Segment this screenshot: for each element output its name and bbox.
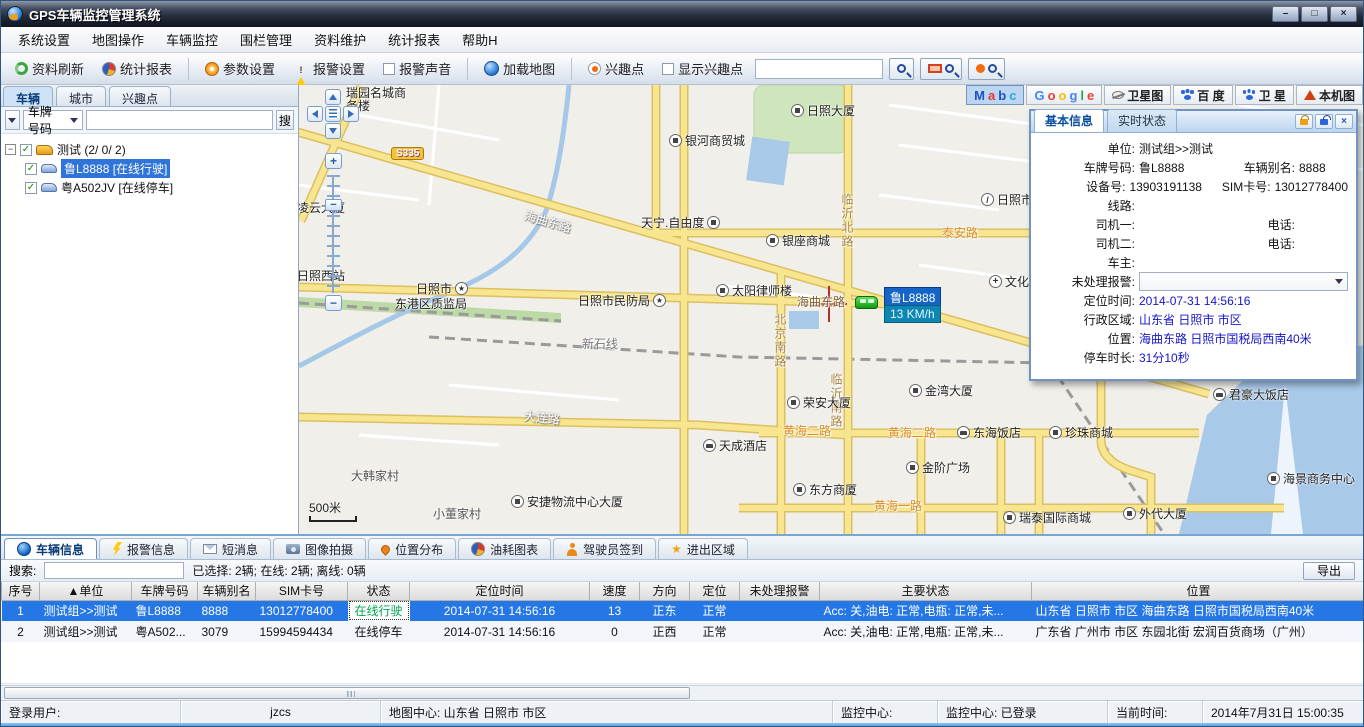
params-settings-button[interactable]: 参数设置 — [199, 56, 281, 81]
road-label: 临沂北路 — [839, 193, 856, 249]
star-icon — [653, 294, 666, 307]
road-label: 泰安路 — [942, 224, 978, 241]
area-search-button[interactable] — [920, 58, 962, 80]
map-scale-label: 500米 — [309, 499, 341, 516]
source-mapabc-button[interactable]: Mabc — [966, 85, 1024, 105]
alias-value: 8888 — [1295, 161, 1326, 175]
status-badge: 在线停车 — [348, 621, 410, 642]
unit-value: 测试组>>测试 — [1135, 140, 1213, 157]
mini-dropdown[interactable] — [5, 110, 20, 130]
search-go-button[interactable]: 搜 — [276, 110, 294, 130]
alarm-dropdown[interactable] — [1139, 272, 1348, 291]
paw-icon — [1181, 89, 1194, 101]
scrollbar-thumb[interactable] — [4, 687, 690, 699]
menu-fence-manage[interactable]: 围栏管理 — [229, 27, 303, 52]
source-baidu-satellite-button[interactable]: 卫 星 — [1235, 85, 1294, 105]
building-icon — [669, 134, 682, 147]
building-icon — [716, 284, 729, 297]
road-label: 大连路 — [523, 407, 561, 428]
star-icon — [455, 282, 468, 295]
table-empty-area — [1, 642, 1363, 684]
car-icon — [41, 164, 57, 173]
source-satellite-button[interactable]: 卫星图 — [1104, 85, 1171, 105]
tab-alarm-info[interactable]: 报警信息 — [99, 538, 188, 559]
unlock-icon — [1320, 119, 1328, 125]
info-panel-body: 单位:测试组>>测试 车牌号码:鲁L8888 车辆别名:8888 设备号:139… — [1031, 133, 1356, 371]
vehicle-search-row: 车牌号码 搜 — [1, 107, 298, 134]
status-badge: 在线行驶 — [348, 600, 410, 621]
tab-basic-info[interactable]: 基本信息 — [1034, 109, 1104, 132]
park-duration-value: 31分10秒 — [1135, 349, 1190, 366]
table-row[interactable]: 2 测试组>>测试 粤A502... 3079 15994594434 在线停车… — [2, 621, 1364, 642]
locate-time-value: 2014-07-31 14:56:16 — [1135, 294, 1250, 308]
envelope-icon — [203, 544, 217, 554]
vehicle-tree: − ✓ 测试 (2/ 0/ 2) ✓ 鲁L8888 [在线行驶] ✓ 粤A502… — [1, 134, 298, 203]
tab-realtime-status[interactable]: 实时状态 — [1107, 109, 1177, 132]
search-button[interactable] — [889, 58, 914, 80]
tab-driver-checkin[interactable]: 驾驶员签到 — [553, 538, 656, 559]
bottom-tabs: 车辆信息 报警信息 短消息 图像拍摄 位置分布 油耗图表 驾驶员签到 ★进出区域 — [1, 536, 1363, 560]
road-label: 黄海二路 — [888, 424, 936, 441]
tab-location-distribution[interactable]: 位置分布 — [368, 538, 456, 559]
panel-close-button[interactable]: × — [1335, 114, 1353, 129]
menu-system-settings[interactable]: 系统设置 — [7, 27, 81, 52]
building-icon — [1049, 426, 1062, 439]
building-icon — [707, 216, 720, 229]
paw-icon — [1243, 89, 1256, 101]
table-filter-input[interactable] — [44, 562, 184, 579]
source-google-button[interactable]: Google — [1026, 85, 1102, 105]
bottom-search-row: 搜索: 已选择: 2辆; 在线: 2辆; 离线: 0辆 导出 — [1, 560, 1363, 582]
map-view[interactable]: 海曲东路 海曲东路 临沂北路 北京南路 临沂南路 泰安路 新石线 大连路 黄海二… — [299, 85, 1364, 534]
road-label: 黄海二路 — [783, 422, 831, 439]
map-poi: 太阳律师楼 — [716, 282, 792, 299]
source-local-map-button[interactable]: 本机图 — [1296, 85, 1363, 105]
group-label: 测试 (2/ 0/ 2) — [57, 141, 126, 158]
poi-radio[interactable]: 兴趣点 — [582, 56, 650, 81]
rectangle-icon — [928, 64, 942, 73]
collapse-icon[interactable]: − — [5, 144, 16, 155]
menu-bar: 系统设置 地图操作 车辆监控 围栏管理 资料维护 统计报表 帮助H — [1, 27, 1363, 53]
gear-icon — [205, 62, 219, 76]
map-poi: 日照大厦 — [791, 102, 855, 119]
road-label: 北京南路 — [772, 313, 789, 369]
vehicle-label: 粤A502JV [在线停车] — [61, 179, 173, 196]
plate-value: 鲁L8888 — [1135, 159, 1225, 176]
app-icon — [7, 6, 23, 22]
device-value: 13903191138 — [1125, 180, 1207, 194]
maximize-button[interactable]: □ — [1301, 6, 1328, 22]
current-time-value: 2014年7月31日 15:00:35 — [1203, 701, 1363, 723]
zoom-out-button[interactable]: − — [325, 295, 342, 311]
col-plate[interactable]: 车牌号码 — [132, 582, 198, 600]
building-icon — [1267, 472, 1280, 485]
chart-icon — [471, 542, 485, 556]
vehicle-info-icon — [17, 542, 31, 556]
unlock-button[interactable] — [1315, 114, 1333, 129]
building-icon — [1123, 507, 1136, 520]
tree-group-row[interactable]: − ✓ 测试 (2/ 0/ 2) — [5, 140, 294, 159]
pen-icon — [981, 193, 994, 206]
pan-up-button[interactable] — [325, 89, 341, 105]
map-scale-bar — [309, 516, 357, 522]
road-label: 新石线 — [582, 335, 618, 352]
building-icon — [793, 483, 806, 496]
map-poi: 安捷物流中心大厦 — [511, 493, 623, 510]
map-poi: 东海饭店 — [957, 424, 1021, 441]
menu-help[interactable]: 帮助H — [451, 27, 508, 52]
monitor-center-status: 监控中心: 已登录 — [938, 701, 1108, 723]
pan-center-button[interactable] — [325, 106, 341, 122]
poi-search-button[interactable] — [968, 58, 1005, 80]
mountain-icon — [1304, 90, 1316, 100]
map-poi: 小董家村 — [433, 505, 481, 522]
map-poi: 东方商厦 — [793, 481, 857, 498]
building-icon — [1003, 511, 1016, 524]
map-poi: 金湾大厦 — [909, 382, 973, 399]
col-alarm[interactable]: 未处理报警 — [740, 582, 820, 600]
map-poi: 大韩家村 — [351, 467, 399, 484]
map-poi: 银座商城 — [766, 232, 830, 249]
plate-search-input[interactable] — [86, 110, 273, 130]
sim-value: 13012778400 — [1271, 180, 1348, 194]
car-icon — [41, 183, 57, 192]
bottom-panel: 车辆信息 报警信息 短消息 图像拍摄 位置分布 油耗图表 驾驶员签到 ★进出区域… — [1, 534, 1363, 700]
source-baidu-button[interactable]: 百 度 — [1173, 85, 1232, 105]
map-poi: 文化 — [989, 273, 1029, 290]
pan-down-button[interactable] — [325, 123, 341, 139]
map-poi: 荣安大厦 — [787, 394, 851, 411]
close-button[interactable]: × — [1330, 6, 1357, 22]
info-panel-header: 基本信息 实时状态 × — [1031, 111, 1356, 133]
col-alias[interactable]: 车辆别名 — [198, 582, 256, 600]
map-source-bar: Mabc Google 卫星图 百 度 卫 星 本机图 — [964, 85, 1363, 105]
satellite-icon — [1112, 91, 1124, 99]
building-icon — [909, 384, 922, 397]
map-poi: 金阶广场 — [906, 459, 970, 476]
col-locate-time[interactable]: 定位时间 — [410, 582, 590, 600]
position-value: 海曲东路 日照市国税局西南40米 — [1135, 330, 1312, 347]
app-window: GPS车辆监控管理系统 – □ × 系统设置 地图操作 车辆监控 围栏管理 资料… — [0, 0, 1364, 727]
building-icon — [766, 234, 779, 247]
vehicle-checkbox[interactable]: ✓ — [25, 182, 37, 194]
vehicle-table: 序号 ▲单位 车牌号码 车辆别名 SIM卡号 状态 定位时间 速度 方向 定位 … — [1, 582, 1364, 642]
col-direction[interactable]: 方向 — [640, 582, 690, 600]
road-label: 海曲东路 — [797, 293, 845, 310]
search-field-selector[interactable]: 车牌号码 — [23, 110, 83, 130]
menu-map-operations[interactable]: 地图操作 — [81, 27, 155, 52]
vehicle-marker[interactable] — [855, 296, 878, 309]
zoom-slider-handle[interactable]: − — [325, 199, 342, 211]
star-icon: ★ — [671, 543, 682, 555]
road-label: 黄海一路 — [874, 497, 922, 514]
pan-left-button[interactable] — [307, 106, 323, 122]
search-label: 搜索: — [9, 562, 36, 579]
alarm-settings-button[interactable]: ! 报警设置 — [287, 56, 371, 81]
window-bottom-border — [1, 723, 1363, 727]
col-index[interactable]: 序号 — [2, 582, 40, 600]
building-icon — [906, 461, 919, 474]
login-user-label: 登录用户: — [1, 701, 181, 723]
checkbox-icon — [662, 63, 674, 75]
road-shield: S335 — [391, 147, 424, 160]
group-vehicle-icon — [36, 145, 53, 155]
menu-report[interactable]: 统计报表 — [377, 27, 451, 52]
minimize-button[interactable]: – — [1272, 6, 1299, 22]
hotel-icon — [1213, 388, 1226, 401]
region-value: 山东省 日照市 市区 — [1135, 311, 1242, 328]
tab-fuel-chart[interactable]: 油耗图表 — [458, 538, 551, 559]
building-icon — [511, 495, 524, 508]
tab-messages[interactable]: 短消息 — [190, 538, 271, 559]
current-time-label: 当前时间: — [1108, 701, 1203, 723]
globe-icon — [484, 61, 499, 76]
map-poi: 银河商贸城 — [669, 132, 745, 149]
dot-icon — [976, 64, 985, 73]
tree-vehicle-row[interactable]: ✓ 粤A502JV [在线停车] — [5, 178, 294, 197]
vehicle-info-panel: 基本信息 实时状态 × 单位:测试组>>测试 车牌号码:鲁L8888 车辆别名:… — [1029, 109, 1358, 381]
report-button[interactable]: 统计报表 — [96, 56, 178, 81]
export-button[interactable]: 导出 — [1303, 562, 1355, 580]
tab-vehicle-info[interactable]: 车辆信息 — [4, 538, 97, 559]
horizontal-scrollbar[interactable] — [1, 685, 1363, 700]
magnifier-icon — [897, 64, 906, 73]
monitor-center-label: 监控中心: — [833, 701, 938, 723]
menu-data-maintain[interactable]: 资料维护 — [303, 27, 377, 52]
refresh-data-button[interactable]: 资料刷新 — [9, 56, 90, 81]
map-poi: 外代大厦 — [1123, 505, 1187, 522]
refresh-icon — [15, 62, 28, 75]
pie-chart-icon — [102, 62, 116, 76]
pin-icon — [379, 543, 392, 556]
building-icon — [791, 104, 804, 117]
toolbar-separator — [571, 58, 572, 80]
pan-right-button[interactable] — [343, 106, 359, 122]
col-speed[interactable]: 速度 — [590, 582, 640, 600]
map-poi: 日照市民防局 — [578, 292, 666, 309]
map-poi: 君豪大饭店 — [1213, 386, 1289, 403]
toolbar-separator — [188, 58, 189, 80]
lightning-icon — [112, 542, 122, 556]
marker-speed-label: 13 KM/h — [884, 305, 941, 323]
alarm-sound-checkbox[interactable]: 报警声音 — [377, 56, 457, 81]
tab-poi[interactable]: 兴趣点 — [109, 86, 171, 106]
tree-vehicle-row[interactable]: ✓ 鲁L8888 [在线行驶] — [5, 159, 294, 178]
camera-icon — [286, 544, 300, 554]
selection-summary: 已选择: 2辆; 在线: 2辆; 离线: 0辆 — [192, 562, 365, 579]
col-sim[interactable]: SIM卡号 — [256, 582, 348, 600]
col-status[interactable]: 状态 — [348, 582, 410, 600]
login-user-value: jzcs — [181, 701, 381, 723]
map-poi: 瑞泰国际商城 — [1003, 509, 1091, 526]
checkbox-icon — [383, 63, 395, 75]
col-location[interactable]: 位置 — [1032, 582, 1364, 600]
person-icon — [566, 543, 578, 556]
status-bar: 登录用户: jzcs 地图中心: 山东省 日照市 市区 监控中心: 监控中心: … — [1, 700, 1363, 723]
load-map-button[interactable]: 加载地图 — [478, 56, 561, 81]
toolbar-separator — [467, 58, 468, 80]
col-gps[interactable]: 定位 — [690, 582, 740, 600]
warning-icon: ! — [293, 62, 309, 76]
table-row[interactable]: 1 测试组>>测试 鲁L8888 8888 13012778400 在线行驶 2… — [2, 600, 1364, 621]
show-poi-checkbox[interactable]: 显示兴趣点 — [656, 56, 749, 81]
toolbar: 资料刷新 统计报表 参数设置 ! 报警设置 报警声音 加载地图 兴趣点 — [1, 53, 1363, 85]
vehicle-label: 鲁L8888 [在线行驶] — [61, 159, 170, 178]
map-center-status: 地图中心: 山东省 日照市 市区 — [381, 701, 833, 723]
lock-button[interactable] — [1295, 114, 1313, 129]
tab-image-capture[interactable]: 图像拍摄 — [273, 538, 366, 559]
hotel-icon — [957, 426, 970, 439]
lock-icon — [1300, 119, 1308, 125]
toolbar-search-input[interactable] — [755, 59, 883, 79]
group-checkbox[interactable]: ✓ — [20, 144, 32, 156]
magnifier-icon — [945, 64, 954, 73]
table-header-row: 序号 ▲单位 车牌号码 车辆别名 SIM卡号 状态 定位时间 速度 方向 定位 … — [2, 582, 1364, 600]
window-title: GPS车辆监控管理系统 — [29, 5, 160, 24]
tab-area-inout[interactable]: ★进出区域 — [658, 538, 748, 559]
map-poi: 天成酒店 — [703, 437, 767, 454]
radio-icon — [588, 62, 601, 75]
vehicle-checkbox[interactable]: ✓ — [25, 163, 37, 175]
map-poi: 天宁.自由度 — [641, 214, 720, 231]
col-main-status[interactable]: 主要状态 — [820, 582, 1032, 600]
magnifier-icon — [988, 64, 997, 73]
map-poi: 珍珠商城 — [1049, 424, 1113, 441]
map-poi: 东港区质监局 — [395, 295, 467, 312]
vehicle-panel: 车辆 城市 兴趣点 车牌号码 搜 − ✓ 测试 (2/ 0/ 2) ✓ — [1, 85, 299, 534]
title-bar: GPS车辆监控管理系统 – □ × — [1, 1, 1363, 27]
building-icon — [787, 396, 800, 409]
zoom-slider[interactable] — [327, 175, 340, 293]
zoom-in-button[interactable]: + — [325, 153, 342, 169]
col-unit[interactable]: ▲单位 — [40, 582, 132, 600]
hotel-icon — [703, 439, 716, 452]
chevron-down-icon — [1335, 279, 1343, 284]
menu-vehicle-monitor[interactable]: 车辆监控 — [155, 27, 229, 52]
chevron-down-icon — [70, 118, 78, 123]
map-poi: 海景商务中心 — [1267, 470, 1355, 487]
plus-icon — [989, 275, 1002, 288]
